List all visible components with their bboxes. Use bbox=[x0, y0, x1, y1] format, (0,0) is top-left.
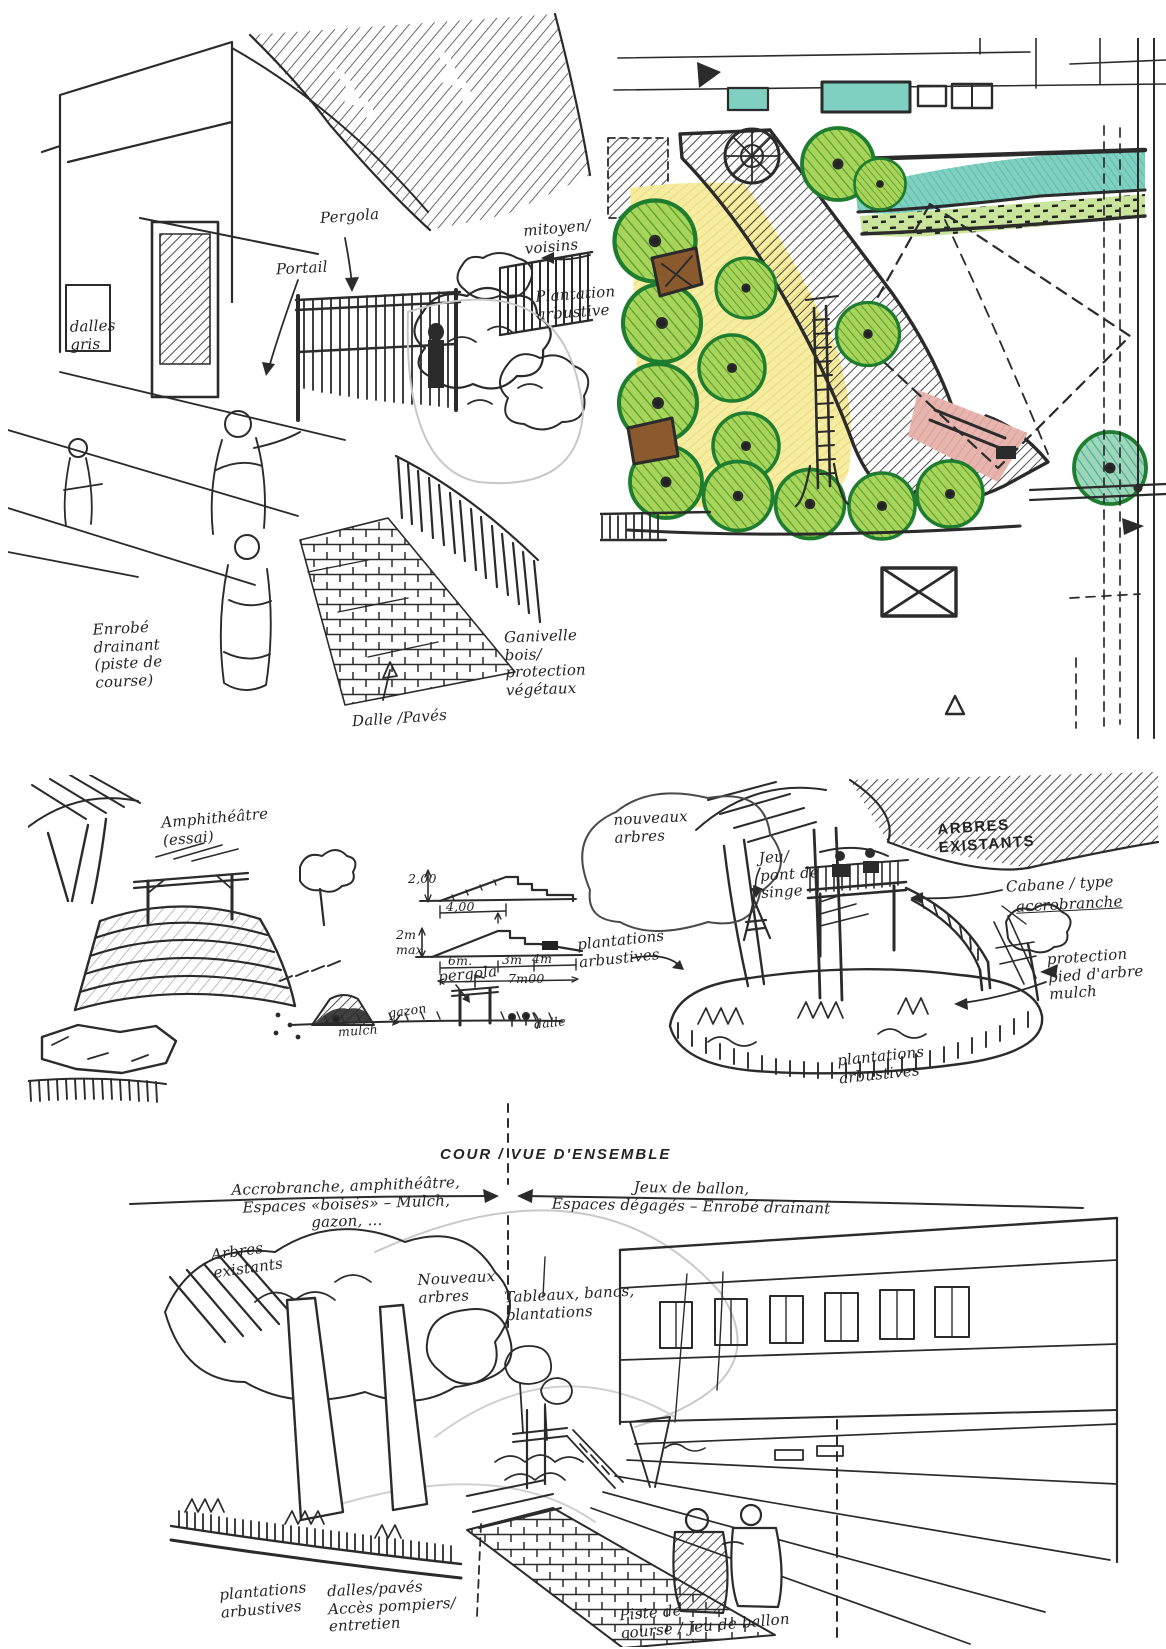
label-zone-gauche: Accrobranche, amphithéâtre, Espaces «boi… bbox=[231, 1174, 461, 1235]
dim-4-00: 4,00 bbox=[446, 900, 475, 915]
label-portail: Portail bbox=[276, 259, 329, 279]
label-dalles-gris: dalles gris bbox=[69, 317, 116, 354]
label-ganivelle-bois: Ganivelle bois/ protection végétaux bbox=[504, 627, 587, 701]
label-jeu-pont-de-singe: Jeu/ pont de singe bbox=[758, 846, 821, 903]
sketchbook-page: Pergola Portail mitoyen/ voisins Plantat… bbox=[0, 0, 1166, 1649]
label-plantations-arbustives-vue: plantations arbustives bbox=[219, 1579, 309, 1622]
label-nouveaux-arbres: nouveaux arbres bbox=[613, 808, 689, 847]
label-plantation-arbustive: Plantation arbustive bbox=[535, 283, 617, 324]
label-zone-droite: Jeux de ballon, Espaces dégagés – Enrobé… bbox=[552, 1178, 831, 1218]
label-enrobe-drainant: Enrobé drainant (piste de course) bbox=[92, 618, 164, 692]
label-cour-vue-ensemble: COUR / VUE D'ENSEMBLE bbox=[440, 1146, 671, 1164]
dim-4m: 4m bbox=[532, 952, 552, 967]
label-protection-pied-arbre: protection pied d'arbre mulch bbox=[1046, 945, 1145, 1005]
label-tableaux-bancs: Tableaux, bancs, plantations bbox=[504, 1283, 636, 1325]
label-arbres-existants-caps: ARBRES EXISTANTS bbox=[937, 815, 1036, 857]
dim-3m: 3m bbox=[502, 953, 522, 968]
dim-2-00: 2,00 bbox=[408, 872, 437, 887]
site-plan-sketch bbox=[600, 38, 1166, 762]
dim-7m00: 7m00 bbox=[508, 972, 545, 987]
label-mitoyen-voisins: mitoyen/ voisins bbox=[523, 217, 594, 258]
dim-2m-max: 2m max bbox=[396, 928, 423, 958]
label-nouveaux-arbres-vue: Nouveaux arbres bbox=[417, 1268, 497, 1307]
courtyard-overview-sketch bbox=[75, 1092, 1160, 1647]
label-acces-pompiers: dalles/pavés Accès pompiers/ entretien bbox=[327, 1577, 458, 1637]
label-mulch: mulch bbox=[338, 1023, 379, 1041]
amphitheatre-sketch bbox=[28, 775, 600, 1110]
